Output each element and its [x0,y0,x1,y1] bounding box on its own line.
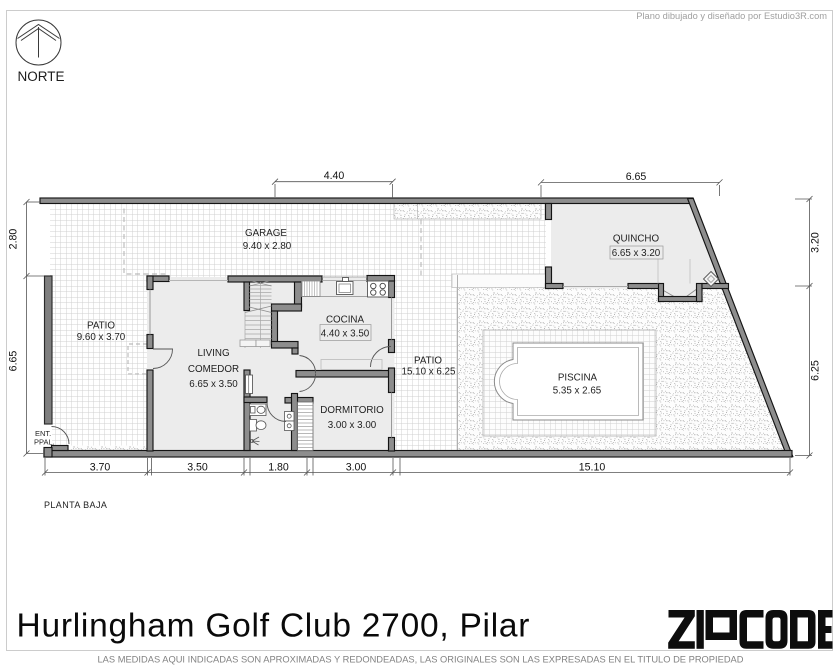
svg-text:15.10 x 6.25: 15.10 x 6.25 [402,367,456,378]
svg-text:5.35 x 2.65: 5.35 x 2.65 [553,386,602,397]
svg-text:COMEDOR: COMEDOR [188,364,239,375]
svg-text:6.25: 6.25 [810,360,822,381]
svg-text:LIVING: LIVING [197,348,229,359]
svg-text:Hurlingham Golf Club 2700, Pil: Hurlingham Golf Club 2700, Pilar [17,608,531,645]
svg-text:COCINA: COCINA [326,315,365,326]
svg-text:6.65: 6.65 [8,351,20,372]
svg-text:PISCINA: PISCINA [558,373,598,384]
svg-text:6.65 x 3.50: 6.65 x 3.50 [189,379,238,390]
svg-text:3.50: 3.50 [187,462,208,474]
svg-text:NORTE: NORTE [17,69,64,84]
svg-text:PPAL.: PPAL. [34,438,55,447]
svg-text:PLANTA BAJA: PLANTA BAJA [44,500,107,510]
svg-text:Plano dibujado y diseñado por: Plano dibujado y diseñado por Estudio3R.… [636,11,827,21]
svg-text:GARAGE: GARAGE [245,228,287,239]
svg-text:9.40 x 2.80: 9.40 x 2.80 [243,241,292,252]
svg-text:4.40: 4.40 [324,170,345,182]
svg-text:3.00: 3.00 [346,462,367,474]
svg-text:DORMITORIO: DORMITORIO [320,405,384,416]
svg-text:LAS MEDIDAS AQUI INDICADAS SON: LAS MEDIDAS AQUI INDICADAS SON APROXIMAD… [98,655,744,665]
svg-text:6.65: 6.65 [626,171,647,183]
svg-text:QUINCHO: QUINCHO [613,234,660,245]
svg-text:6.65 x 3.20: 6.65 x 3.20 [612,248,661,259]
svg-text:3.70: 3.70 [90,462,111,474]
svg-text:PATIO: PATIO [414,356,442,367]
svg-text:15.10: 15.10 [579,462,606,474]
svg-text:3.20: 3.20 [810,232,822,253]
svg-text:PATIO: PATIO [87,321,115,332]
svg-text:3.00 x 3.00: 3.00 x 3.00 [328,420,377,431]
svg-text:4.40 x 3.50: 4.40 x 3.50 [321,329,370,340]
svg-text:9.60 x 3.70: 9.60 x 3.70 [77,332,126,343]
svg-text:1.80: 1.80 [268,462,289,474]
svg-text:2.80: 2.80 [8,229,20,250]
